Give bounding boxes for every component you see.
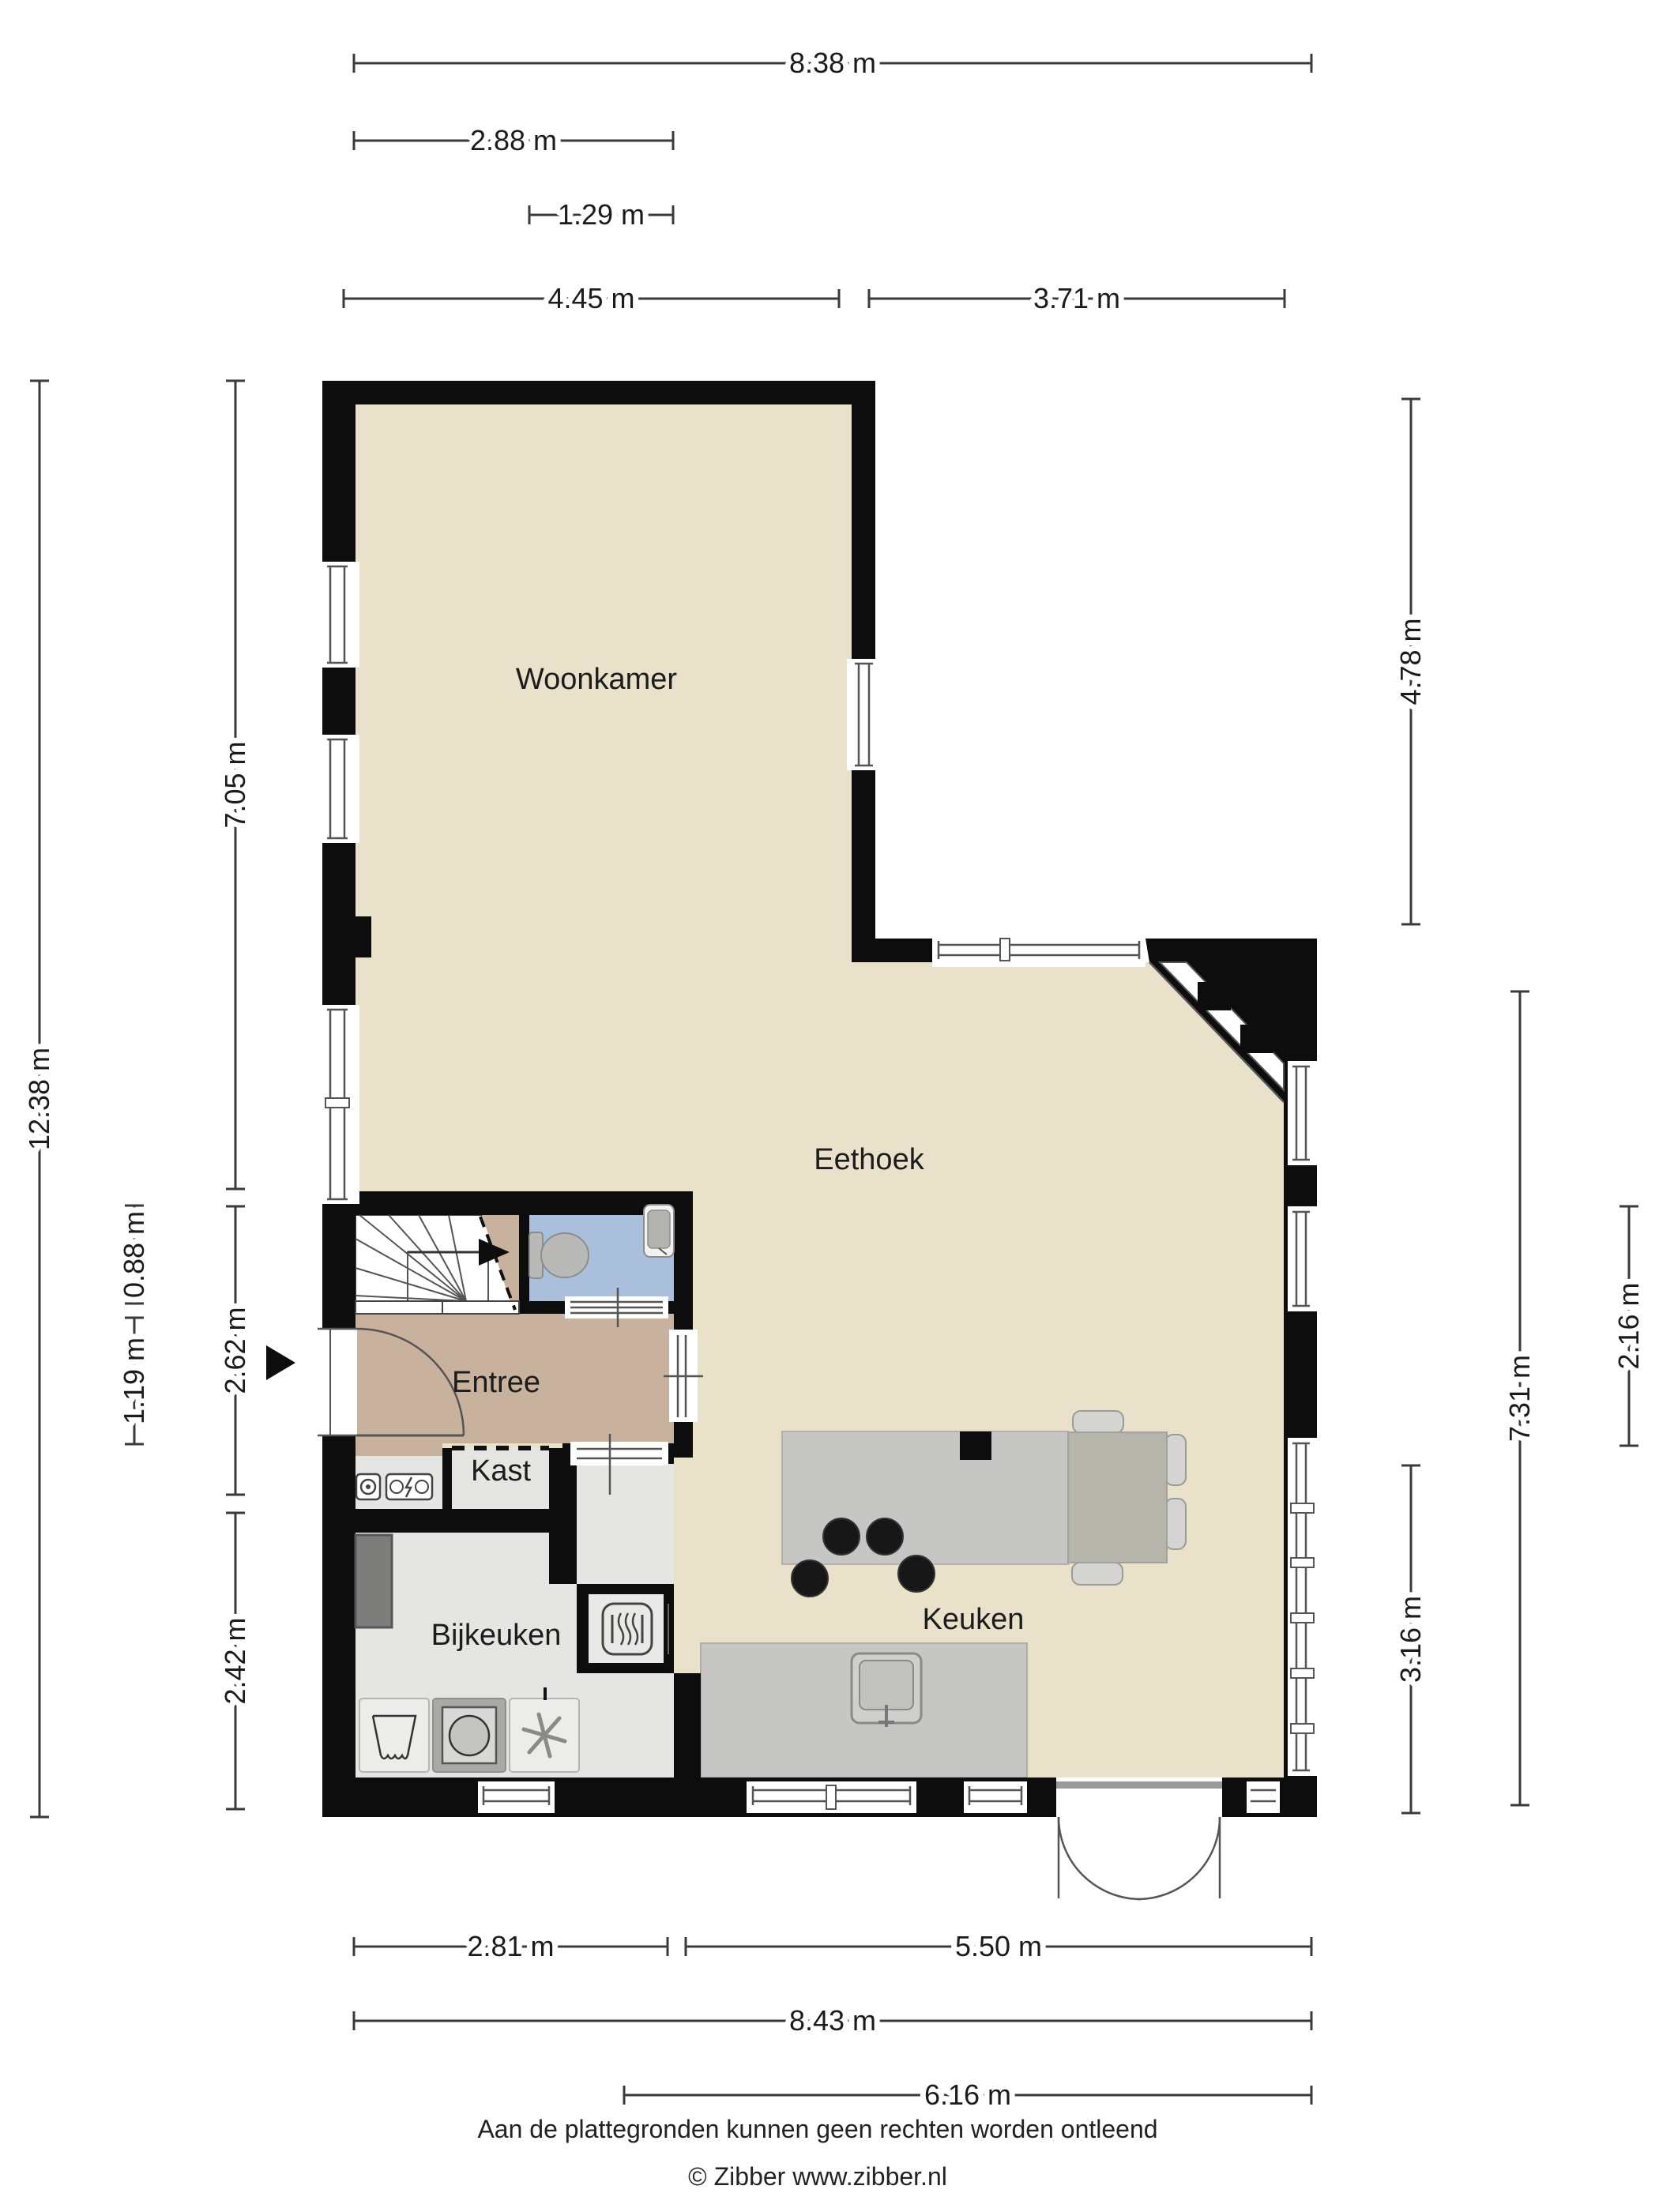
dimension-label: 4.45 m	[547, 282, 634, 314]
freezer-icon	[510, 1687, 579, 1772]
floor-bijkeuken-right	[577, 1673, 674, 1777]
entrance-arrow-icon	[266, 1345, 295, 1380]
wall-stairblock-top	[322, 1191, 693, 1215]
wall-left-stub	[350, 916, 371, 957]
electric-meter-icon	[386, 1474, 432, 1499]
dimension-label: 2.16 m	[1612, 1282, 1645, 1369]
dimension: 3.71 m	[869, 282, 1285, 314]
window-dining-left	[314, 1005, 359, 1204]
wall-top	[322, 381, 875, 404]
window-keuken-bottom-2	[964, 1781, 1027, 1813]
footer-disclaimer: Aan de plattegronden kunnen geen rechten…	[477, 2115, 1157, 2143]
dimension: 3.16 m	[1394, 1465, 1427, 1813]
floor-entree-left	[355, 1443, 442, 1456]
dimension: 2.88 m	[354, 124, 673, 156]
dimension-label: 3.16 m	[1394, 1596, 1427, 1683]
dimension-label: 2.88 m	[470, 124, 557, 156]
garden-door-threshold	[1056, 1781, 1222, 1789]
floorplan-canvas: WoonkamerEethoekEntreeKastBijkeukenKeuke…	[0, 0, 1659, 2212]
wall-kast-left	[442, 1448, 452, 1509]
footer-copyright: © Zibber www.zibber.nl	[688, 2162, 947, 2191]
window-right-2	[1288, 1206, 1317, 1311]
dimension: 2.62 m	[219, 1206, 251, 1495]
dimension-label: 6.16 m	[924, 2078, 1011, 2111]
dimension: 1.19 m	[118, 1318, 150, 1444]
window-keuken-bottom-3	[1247, 1781, 1280, 1813]
dimension-label: 0.88 m	[118, 1211, 150, 1298]
room-label-kast: Kast	[471, 1454, 531, 1488]
toilet-icon	[529, 1232, 589, 1278]
dimension: 12.38 m	[23, 381, 55, 1817]
chair	[1073, 1411, 1123, 1433]
laundry-tub-icon	[359, 1698, 429, 1772]
washing-machine-icon	[433, 1698, 506, 1772]
window-dining-top	[932, 934, 1145, 967]
dimension: 8.43 m	[354, 2004, 1311, 2037]
wall-bijkeuken-top	[322, 1509, 577, 1533]
wall-stairs-toilet	[519, 1215, 529, 1314]
sink-icon	[852, 1653, 921, 1727]
dimension-label: 7.31 m	[1503, 1355, 1536, 1442]
front-door-opening	[318, 1329, 357, 1435]
room-label-entree: Entree	[452, 1366, 540, 1399]
dimension-label: 2.62 m	[219, 1307, 251, 1394]
room-label-keuken: Keuken	[923, 1603, 1025, 1636]
dimension: 2.16 m	[1612, 1206, 1645, 1446]
chair	[1072, 1563, 1123, 1585]
dining-table	[1068, 1432, 1167, 1563]
window-bijkeuken-bottom	[478, 1781, 555, 1813]
window-living-left-1	[314, 562, 359, 668]
garden-door-swing-right	[1138, 1817, 1220, 1899]
dimension-label: 2.81 m	[467, 1930, 554, 1962]
dimension: 1.29 m	[529, 198, 673, 231]
window-entree-right	[664, 1330, 703, 1422]
island-hob-control	[960, 1431, 991, 1460]
dimension-label: 8.38 m	[789, 47, 876, 79]
floorplan-page: WoonkamerEethoekEntreeKastBijkeukenKeuke…	[0, 0, 1659, 2212]
wall-extension-top	[852, 939, 932, 962]
window-living-right	[847, 659, 880, 770]
water-heater-icon	[589, 1594, 668, 1663]
dimension: 8.38 m	[354, 47, 1311, 79]
dimension: 7.31 m	[1503, 991, 1536, 1805]
dimension-label: 1.19 m	[118, 1337, 150, 1424]
chair	[1165, 1499, 1186, 1549]
room-label-woonkamer: Woonkamer	[516, 663, 678, 696]
gas-meter-icon	[356, 1474, 380, 1499]
dimension-label: 5.50 m	[955, 1930, 1042, 1962]
dimension: 7.05 m	[219, 381, 251, 1189]
dimension: 4.78 m	[1394, 399, 1427, 924]
dimension-label: 2.42 m	[219, 1617, 251, 1704]
room-label-bijkeuken: Bijkeuken	[431, 1619, 562, 1652]
dimension: 5.50 m	[686, 1930, 1311, 1962]
floor-corridor	[577, 1464, 674, 1584]
dimension: 4.45 m	[344, 282, 839, 314]
window-keuken-bottom-1	[747, 1781, 916, 1813]
dimension-label: 8.43 m	[789, 2004, 876, 2037]
dimension: 2.81 m	[354, 1930, 668, 1962]
window-right-3	[1288, 1438, 1317, 1776]
dimension-label: 4.78 m	[1394, 618, 1427, 705]
dimension: 0.88 m	[118, 1206, 150, 1303]
dimension-label: 1.29 m	[558, 198, 645, 231]
window-right-1	[1288, 1061, 1317, 1165]
chair	[1165, 1435, 1186, 1485]
dimension-label: 12.38 m	[23, 1048, 55, 1150]
washbasin-icon	[644, 1205, 674, 1257]
room-label-eethoek: Eethoek	[814, 1143, 924, 1176]
dimension-label: 3.71 m	[1033, 282, 1120, 314]
garden-door-swing-left	[1059, 1817, 1141, 1899]
dimension: 6.16 m	[624, 2078, 1311, 2111]
dimension-label: 7.05 m	[219, 741, 251, 828]
storage-cabinet	[355, 1535, 392, 1627]
dimension: 2.42 m	[219, 1513, 251, 1809]
wall-keuken-divider	[674, 1673, 701, 1817]
window-living-left-2	[314, 735, 359, 843]
